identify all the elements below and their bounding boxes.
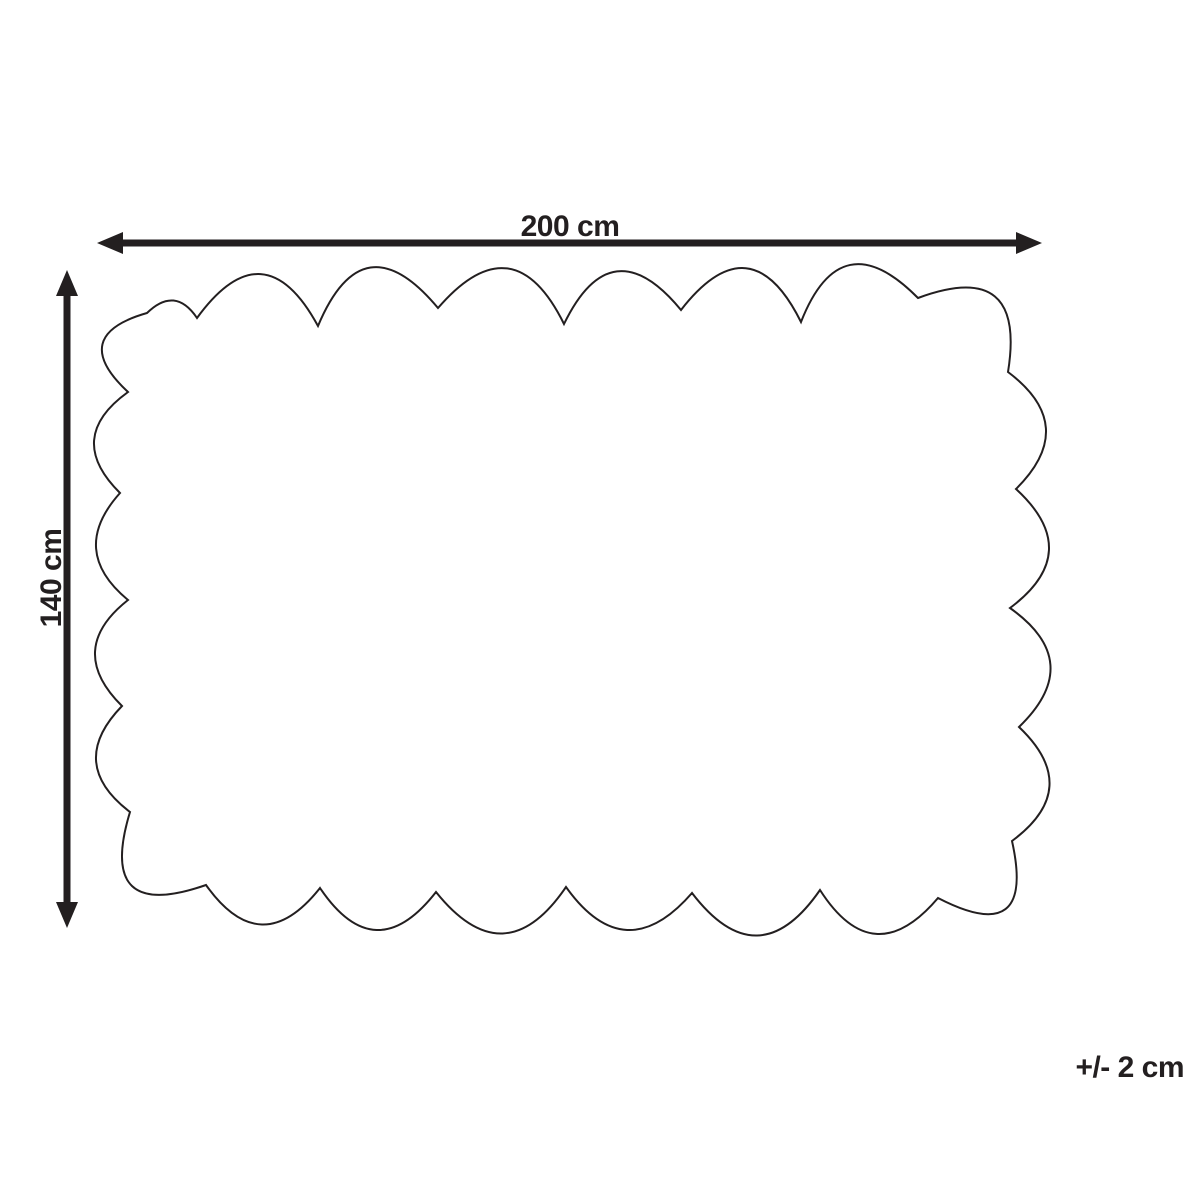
- arrowhead-right-icon: [1016, 232, 1042, 254]
- arrowhead-down-icon: [56, 902, 78, 928]
- dimension-diagram: 200 cm 140 cm +/- 2 cm: [0, 0, 1200, 1200]
- dimension-diagram-svg: 200 cm 140 cm +/- 2 cm: [0, 0, 1200, 1200]
- width-dimension-label: 200 cm: [521, 210, 620, 243]
- arrowhead-up-icon: [56, 270, 78, 296]
- arrowhead-left-icon: [97, 232, 123, 254]
- height-dimension-label: 140 cm: [35, 529, 68, 628]
- scalloped-rug-outline: [94, 264, 1051, 935]
- tolerance-label: +/- 2 cm: [1075, 1051, 1184, 1084]
